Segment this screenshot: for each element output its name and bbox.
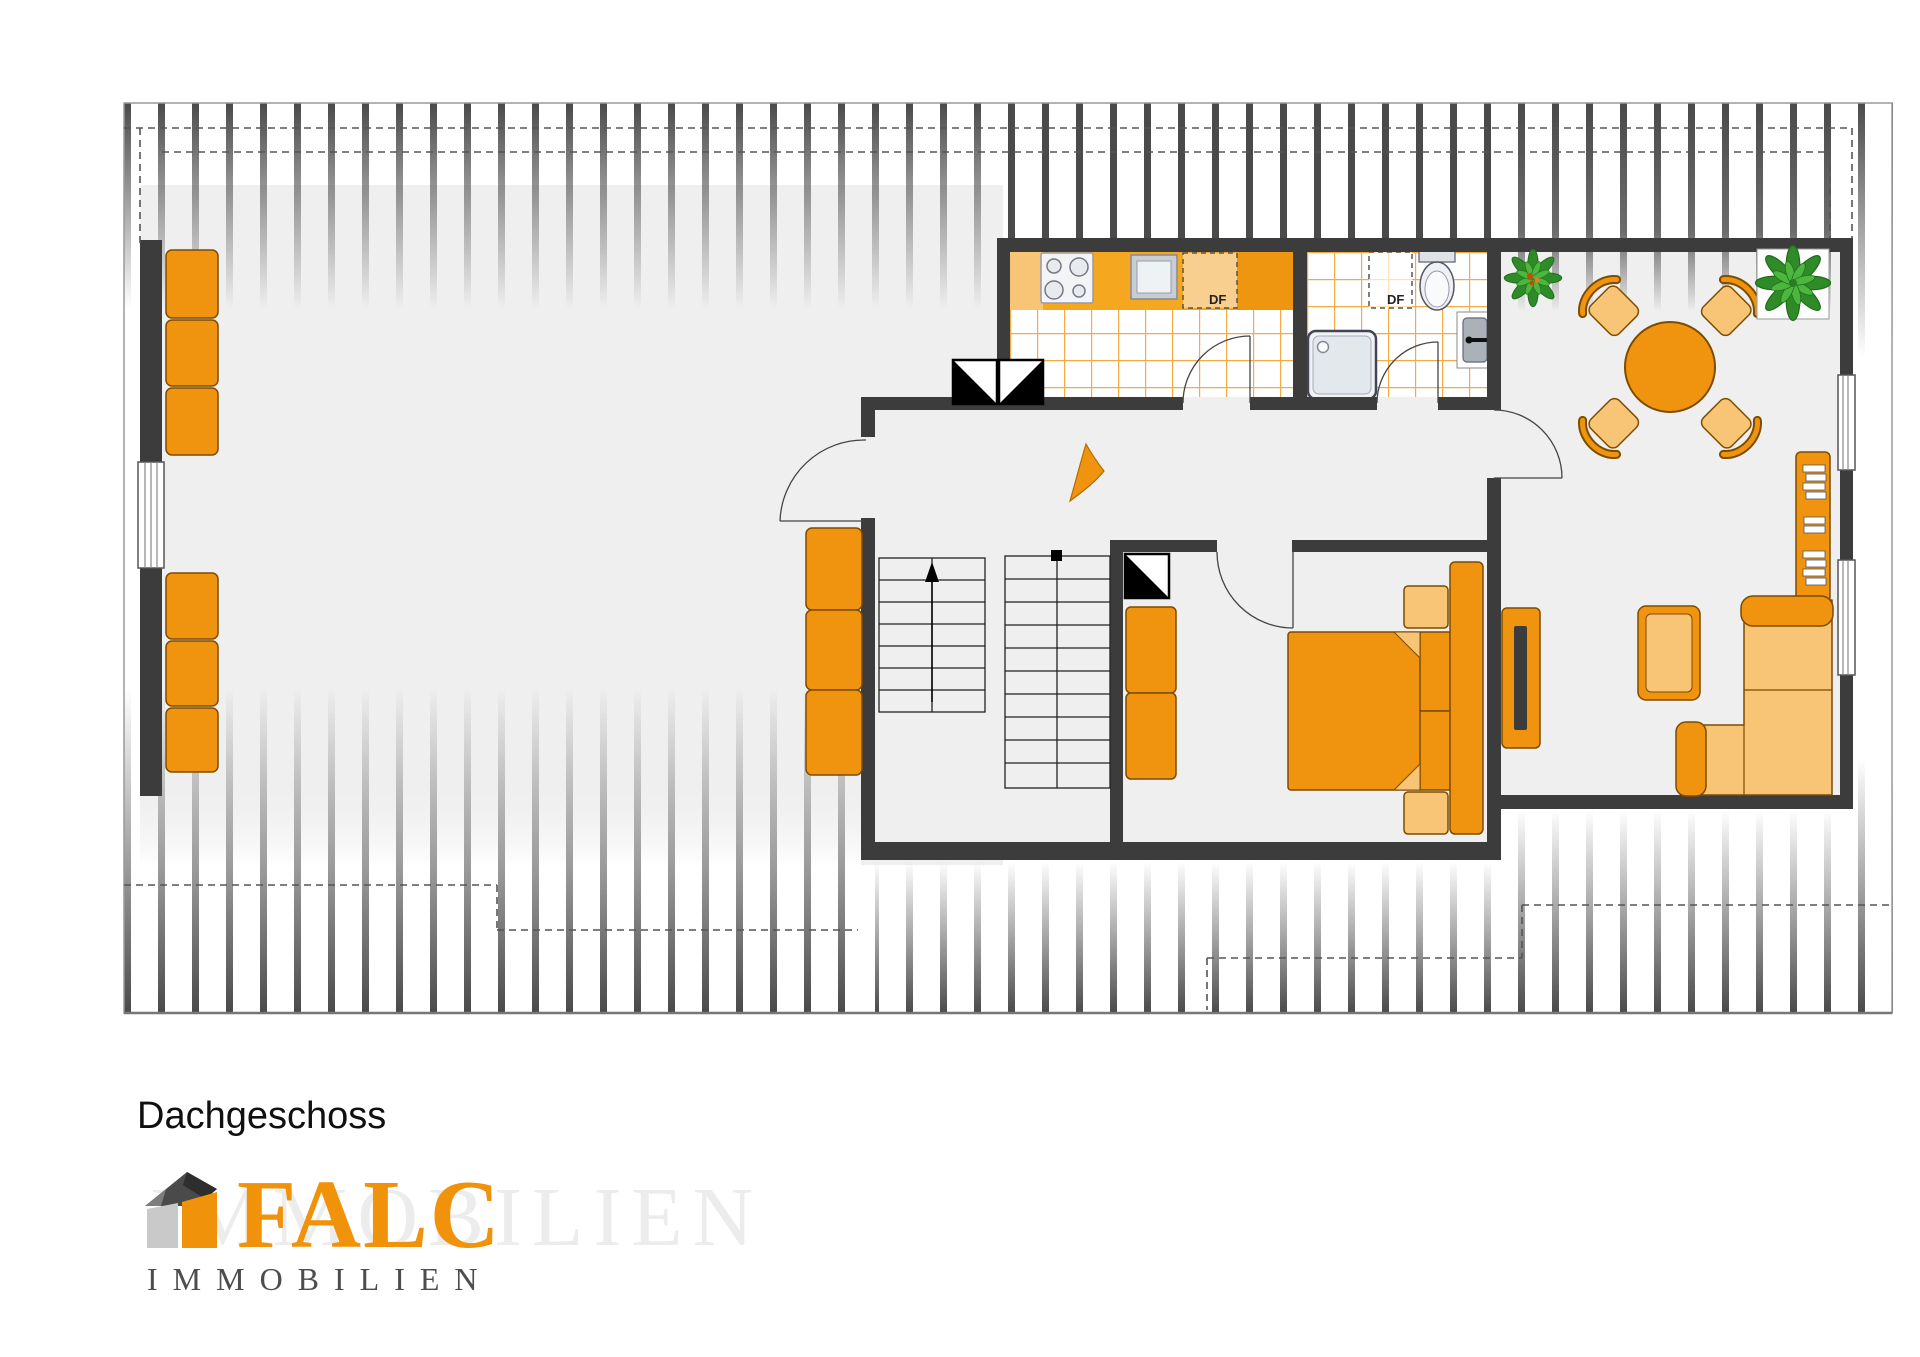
cabinet-row-upper-left <box>166 250 218 455</box>
wall-living-bottom <box>1501 795 1853 809</box>
double-bed <box>1288 632 1450 790</box>
wall-block-bottom <box>861 842 1501 860</box>
sofa-armrest-left <box>1676 722 1706 796</box>
dining-table <box>1625 322 1715 412</box>
sofa-armrest-top <box>1741 596 1833 626</box>
stove <box>1041 253 1093 303</box>
window-right-upper <box>1838 375 1855 470</box>
coffee-table <box>1638 606 1700 700</box>
rafters-top-left <box>124 103 984 308</box>
wall-left-upper <box>140 240 162 462</box>
cabinet-stair-wall <box>806 528 862 775</box>
wall-bedroom-left <box>1110 540 1123 860</box>
wall-kitchen-bath <box>1293 252 1307 397</box>
plant-framed <box>1756 246 1831 321</box>
rafters-bottom-middle <box>875 862 1501 1013</box>
window-left <box>138 462 164 568</box>
nightstand-top <box>1404 586 1448 628</box>
rafters-right-edge <box>1853 103 1893 1013</box>
cabinet-row-lower-left <box>166 573 218 772</box>
page-title: Dachgeschoss <box>137 1095 386 1137</box>
wall-bath-right <box>1487 252 1501 410</box>
plant-corner <box>1504 249 1562 307</box>
wall-hall-bottom-b <box>1250 397 1377 410</box>
shaft-symbol-3 <box>1125 554 1169 598</box>
logo-subtitle: IMMOBILIEN <box>147 1261 493 1297</box>
kitchen-roof-window: DF <box>1183 253 1237 308</box>
nightstand-bottom <box>1404 792 1448 834</box>
sideboard <box>1796 452 1830 602</box>
stair-newel-mark <box>1051 550 1062 561</box>
wardrobe-bedroom-left <box>1126 607 1176 779</box>
logo-brand: FALC <box>237 1161 502 1268</box>
kitchen-sink <box>1131 255 1177 299</box>
wall-living-left <box>1487 478 1501 860</box>
shaft-symbol-1 <box>953 360 997 404</box>
rafters-bottom-right <box>1508 810 1853 1013</box>
window-right-lower <box>1838 560 1855 675</box>
floor-plan-drawing: DF DF <box>0 0 1920 1357</box>
wall-stair-stub <box>861 397 875 437</box>
tv-board <box>1502 608 1540 748</box>
wall-bedroom-top-b <box>1292 540 1487 552</box>
kitchen-roof-window-label: DF <box>1209 292 1226 307</box>
wall-top <box>997 238 1853 252</box>
wall-left-lower <box>140 568 162 796</box>
bathroom: DF <box>1307 249 1493 399</box>
wall-bedroom-top-a <box>1110 540 1217 552</box>
rafters-bottom-left <box>124 688 861 1013</box>
bath-roof-window-label: DF <box>1387 292 1404 307</box>
kitchen-counter-end <box>1010 252 1043 310</box>
shower <box>1308 331 1376 399</box>
wall-kitchen-left <box>997 252 1010 360</box>
wardrobe-bedroom-right <box>1450 562 1483 834</box>
wall-stair-left <box>861 518 875 860</box>
rafters-top-middle <box>1003 103 1501 239</box>
toilet <box>1419 249 1455 310</box>
wall-right <box>1840 252 1853 809</box>
floor-plan-page: DF DF <box>0 0 1920 1357</box>
shaft-symbol-2 <box>999 360 1043 404</box>
bath-roof-window: DF <box>1369 252 1412 308</box>
kitchen-counter-right <box>1237 252 1293 310</box>
falc-logo: IMMOBILIEN FALC IMMOBILIEN <box>145 1161 763 1297</box>
